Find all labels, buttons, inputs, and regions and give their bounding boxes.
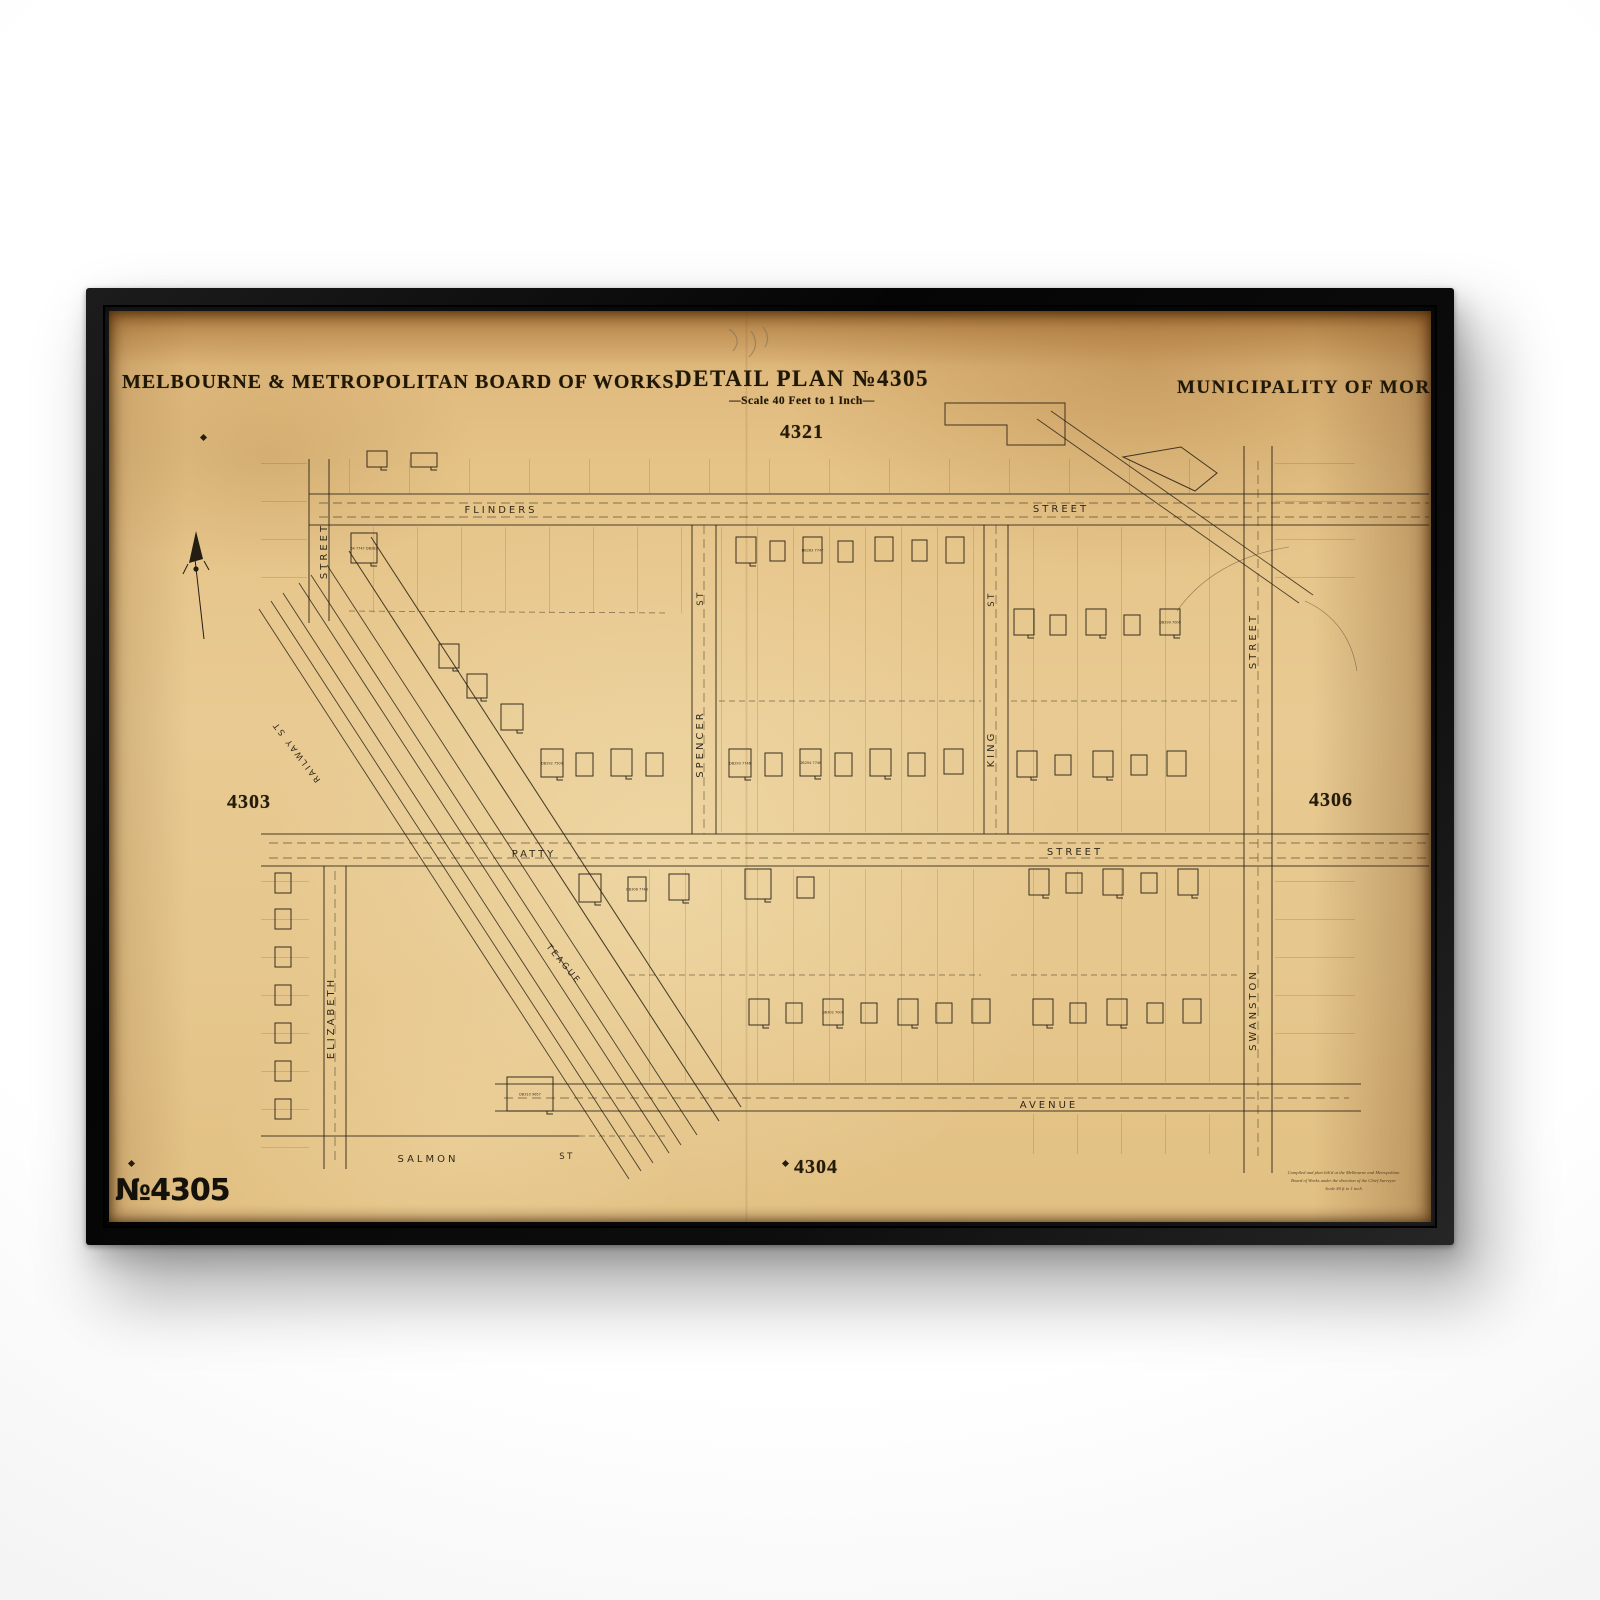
sheet-number: №4305 [115, 1173, 230, 1208]
house-footprint [579, 874, 601, 902]
lot-number: DB310 9657 [519, 1093, 541, 1097]
street-label-flinders: FLINDERS [464, 505, 537, 516]
plan-drawing: 64 7747 DB282DB283 7747DB292 7500DB293 7… [109, 311, 1431, 1222]
street-label-flinders-street: STREET [1033, 504, 1089, 515]
street-label-patty-street: STREET [1047, 847, 1103, 858]
street-label-avenue: AVENUE [1020, 1100, 1078, 1111]
lot-number: DB292 7500 [541, 762, 563, 766]
lot-number: 64 7747 DB282 [350, 547, 377, 551]
lot-number: DB308 7748 [626, 888, 648, 892]
paper-fold-crease [745, 311, 748, 1222]
publisher-title: MELBOURNE & METROPOLITAN BOARD OF WORKS. [122, 371, 586, 394]
adjacent-plan-number-top: 4321 [772, 421, 832, 444]
house-footprint [439, 644, 459, 668]
pencil-scribble [729, 327, 768, 357]
house-footprint [576, 753, 593, 776]
house-footprint [501, 704, 523, 730]
lot-grid [261, 459, 1355, 1169]
street-label-king: KING [986, 731, 997, 768]
street-label-patty: PATTY [512, 849, 557, 860]
lot-number: DB294 7746 [800, 761, 822, 765]
street-label-elizabeth: ELIZABETH [326, 977, 337, 1059]
street-label-right-street: STREET [1248, 613, 1259, 669]
plan-title-block: DETAIL PLAN №4305 —Scale 40 Feet to 1 In… [662, 366, 942, 407]
house-footprint [467, 674, 487, 698]
street-label-spencer-st: ST [696, 590, 706, 606]
imprint: Compiled and plan lith'd at the Melbourn… [1261, 1169, 1426, 1192]
scale-note: —Scale 40 Feet to 1 Inch— [662, 395, 942, 407]
imprint-line-1: Compiled and plan lith'd at the Melbourn… [1261, 1169, 1426, 1177]
street-label-spencer: SPENCER [695, 710, 706, 777]
house-footprint [646, 753, 663, 776]
street-label-railway-st: RAILWAY ST [270, 719, 323, 784]
map-sheet: 64 7747 DB282DB283 7747DB292 7500DB293 7… [109, 311, 1431, 1222]
street-label-swanston: SWANSTON [1248, 969, 1259, 1051]
adjacent-plan-number-right: 4306 [1309, 789, 1353, 812]
lot-number: DB283 7747 [802, 549, 824, 553]
plan-title: DETAIL PLAN №4305 [662, 366, 942, 392]
imprint-line-2: Board of Works under the direction of th… [1261, 1177, 1426, 1185]
wall: 64 7747 DB282DB283 7747DB292 7500DB293 7… [0, 0, 1600, 1600]
municipality-title: MUNICIPALITY OF MORDIAL [1177, 377, 1431, 399]
street-label-left-street: STREET [319, 523, 330, 579]
street-label-salmon: SALMON [398, 1154, 459, 1165]
adjacent-plan-number-bottom: 4304 [794, 1156, 838, 1179]
street-label-teague: TEAGUE [543, 942, 583, 987]
street-label-salmon-st: ST [559, 1152, 575, 1162]
lot-number: DB302 7000 [822, 1011, 844, 1015]
adjacent-plan-number-left: 4303 [227, 791, 271, 814]
north-arrow-icon [183, 531, 209, 639]
picture-frame: 64 7747 DB282DB283 7747DB292 7500DB293 7… [86, 288, 1454, 1245]
house-footprint [611, 749, 632, 776]
imprint-line-3: Scale 40 ft to 1 inch [1261, 1185, 1426, 1193]
street-label-king-st: ST [987, 591, 997, 607]
lot-number: DB299 7000 [1159, 621, 1181, 625]
